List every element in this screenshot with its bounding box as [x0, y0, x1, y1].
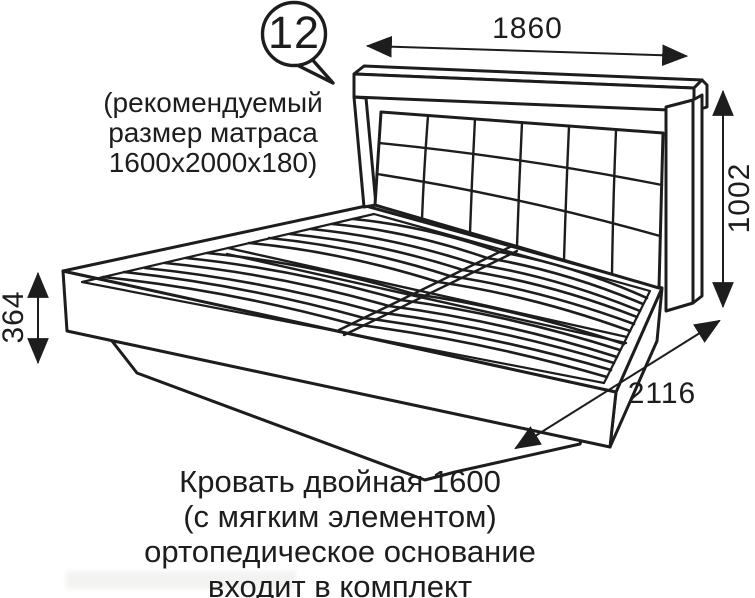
headboard-right-post — [666, 100, 693, 311]
dimension-label-frame-height: 364 — [0, 262, 31, 372]
callout-number: 12 — [260, 8, 328, 58]
mattress-note: (рекомендуемый размер матраса 1600х2000х… — [68, 88, 358, 178]
dimension-label-headboard-height: 1002 — [723, 136, 755, 260]
mattress-note-line-3: 1600х2000х180) — [68, 148, 358, 178]
caption-line-4: входит в комплект — [8, 569, 672, 598]
mattress-note-line-1: (рекомендуемый — [68, 88, 358, 118]
mattress-note-line-2: размер матраса — [68, 118, 358, 148]
dimension-label-bed-length: 2116 — [597, 377, 727, 411]
product-caption: Кровать двойная 1600 (с мягким элементом… — [8, 464, 672, 598]
technical-drawing-canvas: 12 1860 1002 364 2116 (рекомендуемый раз… — [0, 0, 755, 598]
dimension-arrow-headboard-width — [368, 46, 686, 56]
dimension-label-headboard-width: 1860 — [455, 12, 600, 46]
caption-line-3: ортопедическое основание — [8, 534, 672, 569]
caption-line-2: (с мягким элементом) — [8, 499, 672, 534]
caption-line-1: Кровать двойная 1600 — [8, 464, 672, 499]
